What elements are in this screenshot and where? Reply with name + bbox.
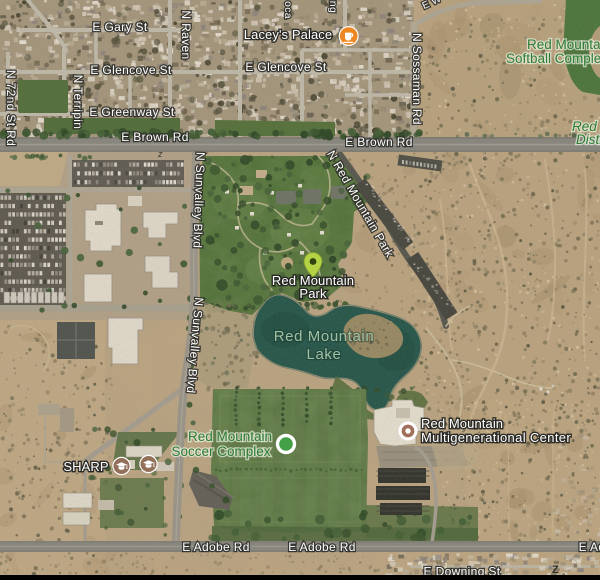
- svg-text:oca: oca: [282, 1, 294, 19]
- svg-text:N Sossaman Rd: N Sossaman Rd: [410, 33, 424, 125]
- svg-text:E Greenway St: E Greenway St: [89, 105, 175, 119]
- svg-text:Red Mountain: Red Mountain: [274, 328, 375, 345]
- svg-text:E Downing St: E Downing St: [424, 565, 501, 576]
- svg-text:Soccer Complex: Soccer Complex: [171, 444, 270, 459]
- svg-text:Distric: Distric: [576, 132, 600, 147]
- svg-text:N 72nd St Rd: N 72nd St Rd: [4, 70, 18, 146]
- svg-text:Multigenerational Center: Multigenerational Center: [421, 430, 571, 445]
- svg-text:N Raven: N Raven: [179, 10, 193, 59]
- svg-text:Red Mountain: Red Mountain: [527, 37, 600, 52]
- svg-text:Red Mountain: Red Mountain: [188, 429, 272, 444]
- svg-text:Lacey's Palace: Lacey's Palace: [244, 27, 332, 42]
- svg-text:Lake: Lake: [307, 346, 342, 363]
- svg-text:E Adobe Rd: E Adobe Rd: [288, 540, 356, 554]
- svg-text:Z: Z: [552, 564, 559, 575]
- svg-text:E Glencove St: E Glencove St: [90, 63, 172, 77]
- svg-text:E Gary St: E Gary St: [92, 20, 147, 34]
- svg-text:E Glencove St: E Glencove St: [245, 60, 327, 74]
- svg-text:E Adobe Rd: E Adobe Rd: [182, 540, 250, 554]
- svg-text:E Brown Rd: E Brown Rd: [345, 135, 413, 149]
- svg-text:E Ad: E Ad: [579, 540, 600, 554]
- svg-text:Red Mountain: Red Mountain: [421, 416, 503, 431]
- svg-text:ng: ng: [327, 1, 339, 13]
- svg-text:Softball Complex: Softball Complex: [506, 51, 600, 66]
- svg-text:Park: Park: [299, 286, 327, 301]
- svg-text:N Terripin: N Terripin: [71, 75, 85, 130]
- svg-text:SHARP: SHARP: [63, 459, 108, 474]
- svg-text:z: z: [332, 154, 338, 164]
- svg-text:z: z: [157, 149, 163, 159]
- svg-text:E Brown Rd: E Brown Rd: [121, 130, 189, 144]
